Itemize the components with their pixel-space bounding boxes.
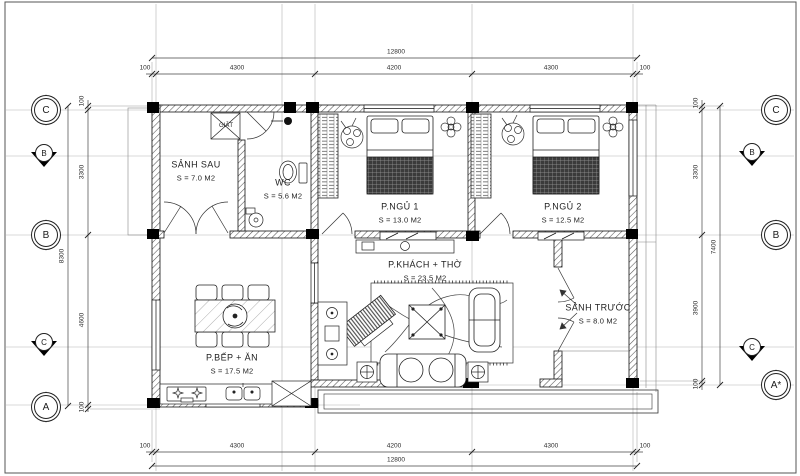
sofa [380,354,466,387]
room-name: P.BẾP + ĂN [206,352,258,362]
room-name: SẢNH SAU [171,159,220,169]
dim-left-overall: 8300 [59,249,66,263]
dim-bottom-overall: 12800 [387,457,405,464]
wardrobe-bedroom1 [318,114,338,198]
stove-icon [167,387,206,402]
front-terrace [318,390,658,413]
grid-letter: A [43,402,50,413]
water-heater-icon [271,117,292,125]
dim-bottom-seg: 100 [640,443,651,450]
dim-top-seg: 4300 [230,65,244,72]
plant-icon-bedroom1 [341,118,363,148]
room-name: P.KHÁCH + THỜ [388,259,462,269]
room-area: S = 12.5 M2 [542,215,585,224]
dim-right-seg: 100 [693,379,700,390]
fridge-space [272,381,311,406]
room-label-p-bep-an: P.BẾP + ĂN S = 17.5 M2 [206,346,258,375]
dim-top-seg: 100 [140,65,151,72]
room-area: S = 13.0 M2 [379,215,422,224]
room-area: S = 7.0 M2 [171,173,220,182]
room-label-p-khach-tho: P.KHÁCH + THỜ S = 23.5 M2 [388,253,462,282]
dim-top-seg: 4300 [544,65,558,72]
dim-right-overall: 7400 [711,240,718,254]
bed-bedroom2 [533,116,599,194]
grid-bubble-left-c: C [34,98,58,122]
dim-bottom-seg: 4300 [544,443,558,450]
dim-right-seg: 3900 [693,301,700,315]
dim-left-seg: 100 [79,96,86,107]
room-label-p-ngu-2: P.NGỦ 2 S = 12.5 M2 [542,195,585,224]
room-label-sanh-sau: SẢNH SAU S = 7.0 M2 [171,153,220,182]
dim-bottom-seg: 100 [140,443,151,450]
room-name: SẢNH TRƯỚC [565,302,630,312]
section-letter: B [743,143,761,161]
bed-bedroom1 [367,116,433,194]
room-area: S = 8.0 M2 [565,316,630,325]
section-marker-right-c: C [739,342,765,362]
dim-right-seg: 3300 [693,165,700,179]
wash-basin-icon [246,208,263,227]
floor-plan-sheet: SẢNH SAU S = 7.0 M2 WC S = 5.6 M2 P.NGỦ … [0,0,800,476]
section-letter: C [35,333,53,351]
ceiling-fan-icon-bedroom1 [441,117,461,137]
room-area: S = 23.5 M2 [388,273,462,282]
dim-bottom-seg: 4300 [230,443,244,450]
side-stool-left [357,362,377,382]
room-name: WC [275,177,291,187]
coffee-table [409,305,445,339]
altar-shelf [356,240,454,253]
section-letter: C [743,338,761,356]
dim-top-seg: 100 [640,65,651,72]
grid-bubble-right-a: A* [764,373,788,397]
room-label-sanh-truoc: SẢNH TRƯỚC S = 8.0 M2 [565,296,630,325]
grid-bubble-right-b: B [764,223,788,247]
grid-bubble-left-b: B [34,223,58,247]
room-name: P.NGỦ 2 [544,201,582,211]
section-marker-right-b: B [739,147,765,167]
laundry-label: GIẶT [219,123,233,129]
plant-icon-bedroom2 [502,115,524,145]
grid-letter: A* [771,380,782,391]
grid-letter: C [772,105,779,116]
armchair [469,288,500,352]
dim-left-seg: 100 [79,402,86,413]
room-label-wc: WC S = 5.6 M2 [264,171,302,200]
dim-left-seg: 3300 [79,165,86,179]
dim-top-seg: 4200 [387,65,401,72]
grid-letter: B [43,230,50,241]
section-marker-left-c: C [31,337,57,357]
side-stool-right [468,362,488,382]
ceiling-fan-icon-bedroom2 [603,117,623,137]
section-letter: B [35,144,53,162]
dim-top-overall: 12800 [387,49,405,56]
room-area: S = 17.5 M2 [206,366,258,375]
wardrobe-bedroom2 [471,114,491,198]
dim-right-seg: 100 [693,98,700,109]
section-marker-left-b: B [31,148,57,168]
room-area: S = 5.6 M2 [264,191,302,200]
grid-letter: C [42,105,49,116]
dining-table [195,285,275,347]
room-name: P.NGỦ 1 [381,201,419,211]
tv-cabinet [318,302,347,365]
grid-bubble-right-c: C [764,98,788,122]
grid-bubble-left-a: A [34,395,58,419]
dim-bottom-seg: 4200 [387,443,401,450]
grid-letter: B [773,230,780,241]
room-label-p-ngu-1: P.NGỦ 1 S = 13.0 M2 [379,195,422,224]
dim-left-seg: 4600 [79,313,86,327]
